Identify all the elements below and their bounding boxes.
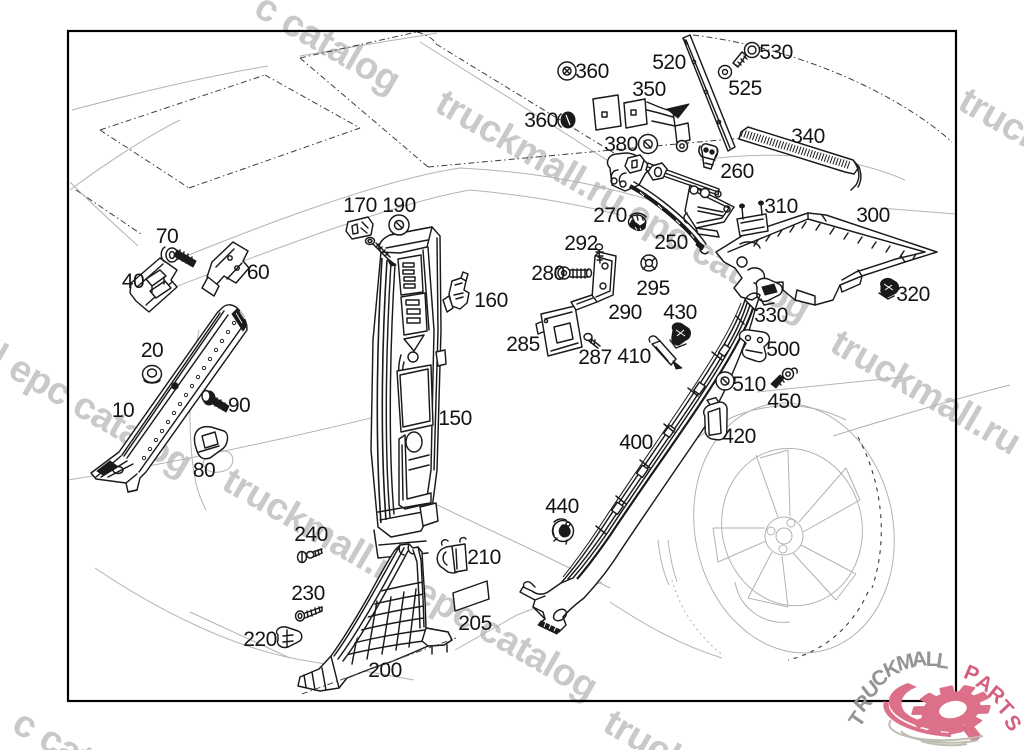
svg-text:292: 292 [564,232,598,255]
svg-text:295: 295 [636,277,670,300]
svg-text:240: 240 [294,523,328,546]
svg-text:70: 70 [156,225,178,248]
svg-text:210: 210 [467,546,501,569]
svg-text:285: 285 [506,333,540,356]
svg-text:530: 530 [759,41,793,64]
svg-text:360: 360 [575,60,609,83]
svg-text:350: 350 [632,78,666,101]
svg-text:150: 150 [438,407,472,430]
svg-text:20: 20 [141,339,163,362]
svg-text:170: 170 [343,194,377,217]
svg-text:440: 440 [545,495,579,518]
svg-text:525: 525 [728,77,762,100]
svg-text:430: 430 [663,301,697,324]
svg-text:160: 160 [474,289,508,312]
svg-text:80: 80 [193,459,215,482]
svg-text:280: 280 [531,262,565,285]
svg-text:310: 310 [764,195,798,218]
svg-text:230: 230 [291,582,325,605]
svg-text:270: 270 [593,204,627,227]
svg-text:300: 300 [856,204,890,227]
svg-text:520: 520 [652,51,686,74]
svg-text:40: 40 [122,270,144,293]
svg-text:60: 60 [247,261,269,284]
svg-text:190: 190 [382,194,416,217]
svg-text:320: 320 [896,283,930,306]
svg-text:90: 90 [228,394,250,417]
svg-text:360: 360 [524,109,558,132]
svg-text:260: 260 [720,160,754,183]
svg-text:287: 287 [578,346,612,369]
svg-text:510: 510 [732,373,766,396]
svg-text:290: 290 [608,301,642,324]
svg-text:400: 400 [619,431,653,454]
svg-text:500: 500 [766,338,800,361]
svg-text:420: 420 [722,425,756,448]
svg-text:250: 250 [654,231,688,254]
svg-text:205: 205 [458,612,492,635]
svg-text:410: 410 [617,345,651,368]
svg-text:340: 340 [791,125,825,148]
svg-text:220: 220 [243,628,277,651]
svg-text:200: 200 [368,659,402,682]
svg-text:450: 450 [767,390,801,413]
svg-text:10: 10 [112,399,134,422]
svg-text:380: 380 [604,133,638,156]
svg-text:330: 330 [754,304,788,327]
